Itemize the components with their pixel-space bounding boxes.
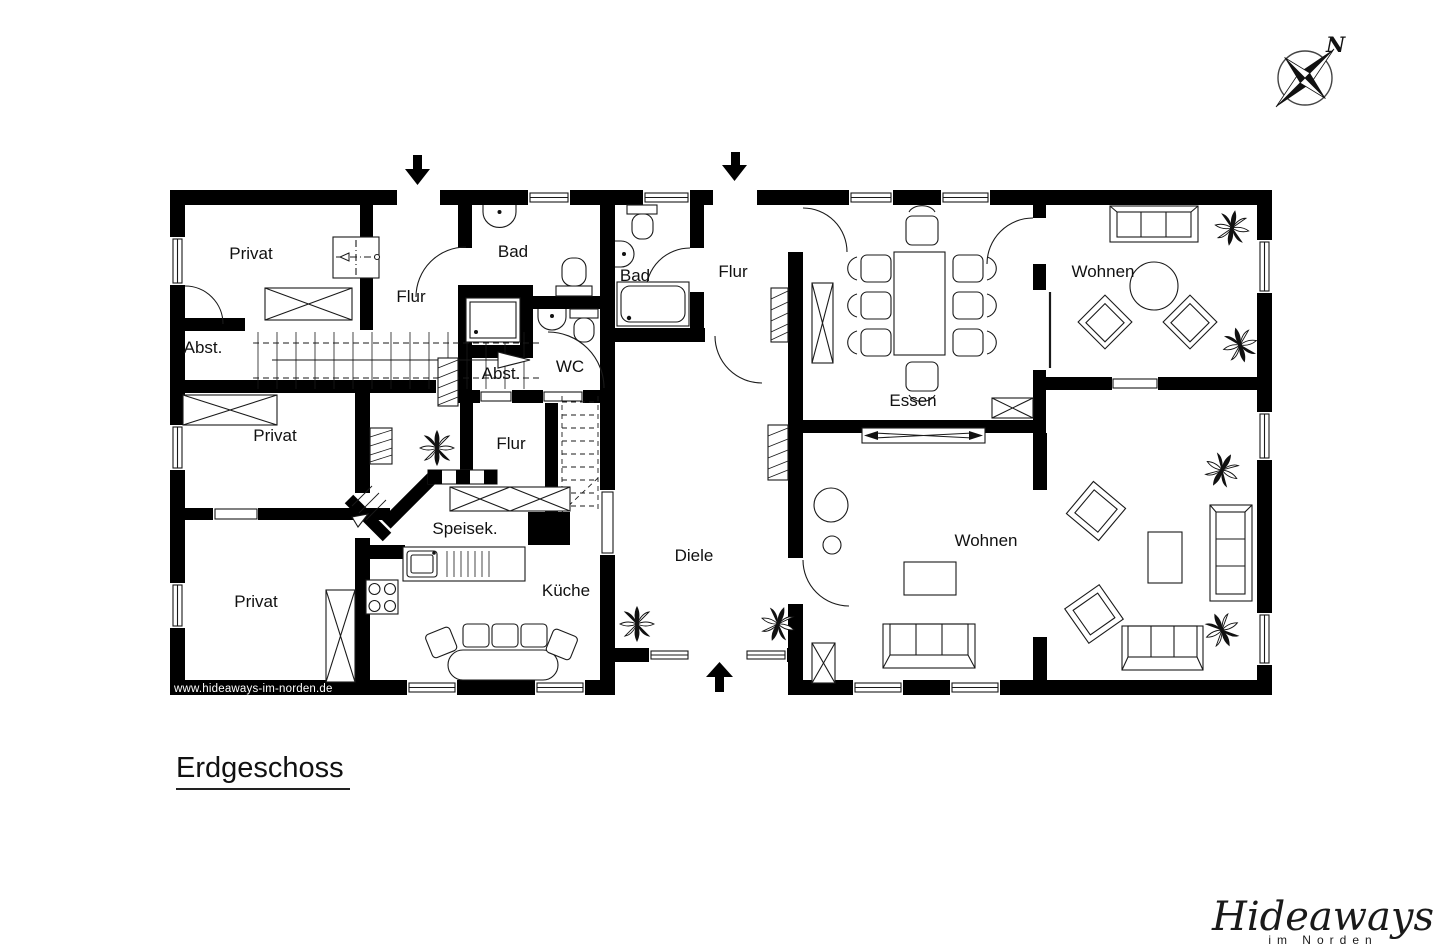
- radiator: [370, 428, 392, 464]
- dining-set: [848, 206, 997, 402]
- room-label-wc: WC: [556, 357, 584, 376]
- toilet-bad-2: [627, 205, 657, 239]
- stove: [366, 580, 398, 614]
- sink-wc: [538, 309, 566, 330]
- round-table-wohnen-1: [1130, 262, 1178, 310]
- floor-plan-drawing: N Privat Abst. Privat Privat Flur Bad Ab…: [0, 0, 1440, 949]
- wall-hatch-box: [333, 237, 380, 278]
- bathtub: [617, 282, 689, 326]
- toilet-wc: [570, 309, 598, 342]
- armchair: [1065, 585, 1123, 643]
- kitchen-table: [424, 624, 578, 680]
- room-label-kueche: Küche: [542, 581, 590, 600]
- room-label-abst-2: Abst.: [482, 364, 521, 383]
- room-label-flur-3: Flur: [718, 262, 748, 281]
- entrance-arrow-left-icon: [405, 155, 430, 185]
- coffee-table: [904, 562, 956, 595]
- room-label-flur-1: Flur: [396, 287, 426, 306]
- stool: [823, 536, 841, 554]
- brand-logo-main: Hideaways: [1212, 897, 1434, 937]
- wardrobe-privat-3: [326, 590, 355, 682]
- room-label-privat-1: Privat: [229, 244, 273, 263]
- bed-privat-1: [265, 288, 352, 320]
- kitchen-counter: [403, 547, 525, 581]
- radiator: [768, 425, 788, 480]
- floor-plan-page: N Privat Abst. Privat Privat Flur Bad Ab…: [0, 0, 1440, 949]
- sofa-wohnen-2-bottom: [1122, 626, 1203, 670]
- armchair: [1078, 295, 1132, 349]
- room-label-wohnen-1: Wohnen: [1071, 262, 1134, 281]
- room-label-speisekammer: Speisek.: [432, 519, 497, 538]
- bed-privat-2: [183, 395, 277, 425]
- wardrobe-diele-entry: [812, 643, 835, 683]
- compass-rose-icon: N: [1256, 29, 1355, 128]
- entrance-arrow-bottom-icon: [706, 662, 733, 692]
- checkered-wall: [428, 470, 497, 484]
- watermark: www.hideaways-im-norden.de: [173, 683, 333, 695]
- side-table-round: [814, 488, 848, 522]
- pantry-cabinet: [450, 487, 570, 511]
- sink-bad-2: [615, 241, 634, 267]
- sofa-wohnen-2-right: [1210, 505, 1252, 601]
- table-wohnen-2: [1148, 532, 1182, 583]
- entrance-arrow-middle-icon: [722, 152, 747, 181]
- radiator: [771, 288, 788, 342]
- room-label-bad-1: Bad: [498, 242, 528, 261]
- brand-logo: Hideaways im Norden: [1212, 897, 1434, 947]
- room-label-essen: Essen: [889, 391, 936, 410]
- sofa-wohnen-1: [1110, 206, 1198, 242]
- room-label-privat-2: Privat: [253, 426, 297, 445]
- north-label: N: [1325, 32, 1346, 57]
- room-label-diele: Diele: [675, 546, 714, 565]
- wardrobe-essen: [812, 283, 833, 363]
- room-label-flur-2: Flur: [496, 434, 526, 453]
- armchair: [1066, 481, 1125, 540]
- sliding-door-sideboard: [862, 428, 985, 443]
- room-label-bad-2: Bad: [620, 266, 650, 285]
- sofa-wohnen-2-left: [883, 624, 975, 668]
- room-label-privat-3: Privat: [234, 592, 278, 611]
- shower: [466, 298, 520, 342]
- cabinet-essen: [992, 398, 1033, 418]
- radiator: [438, 358, 458, 406]
- sink-bad-1: [483, 205, 516, 227]
- room-label-abst-1: Abst.: [184, 338, 223, 357]
- plan-title: Erdgeschoss: [176, 752, 350, 790]
- room-label-wohnen-2: Wohnen: [954, 531, 1017, 550]
- toilet-bad-1: [556, 258, 592, 296]
